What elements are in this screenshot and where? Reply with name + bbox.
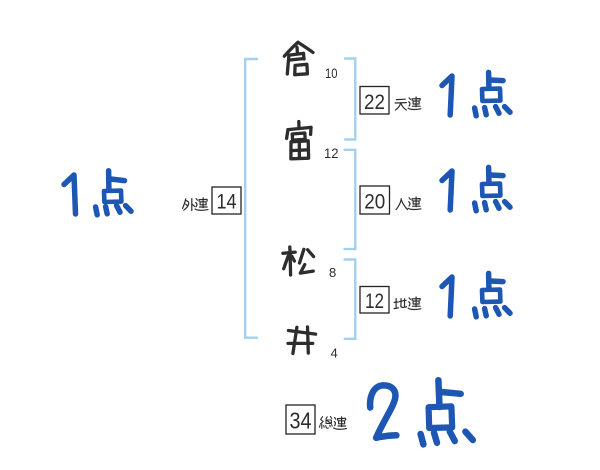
svg-text:8: 8 — [329, 265, 336, 280]
svg-text:14: 14 — [217, 191, 237, 214]
svg-text:10: 10 — [325, 65, 338, 81]
svg-text:20: 20 — [364, 191, 385, 214]
svg-text:22: 22 — [364, 91, 385, 114]
svg-text:12: 12 — [365, 290, 384, 313]
svg-text:34: 34 — [290, 408, 312, 434]
svg-text:4: 4 — [331, 346, 338, 361]
svg-text:12: 12 — [324, 145, 339, 161]
